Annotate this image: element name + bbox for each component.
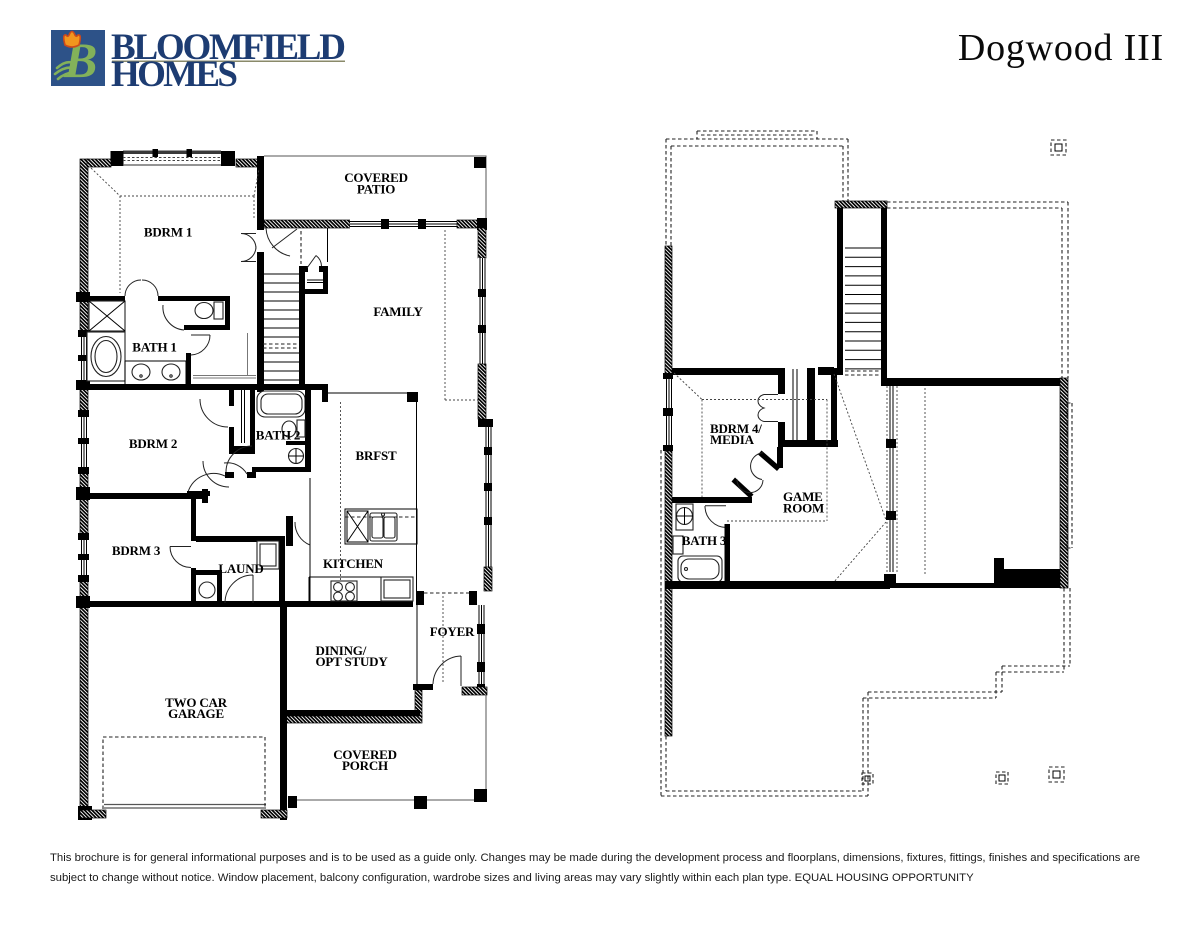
- svg-text:FAMILY: FAMILY: [373, 304, 423, 319]
- svg-text:BDRM 3: BDRM 3: [112, 543, 161, 558]
- svg-text:BDRM 1: BDRM 1: [144, 225, 192, 240]
- svg-text:GARAGE: GARAGE: [168, 706, 224, 721]
- svg-text:Dogwood III: Dogwood III: [958, 27, 1164, 69]
- svg-text:BDRM 2: BDRM 2: [129, 436, 177, 451]
- svg-text:subject to change without noti: subject to change without notice. Window…: [50, 872, 974, 884]
- svg-text:BATH 3: BATH 3: [682, 533, 727, 548]
- svg-text:OPT STUDY: OPT STUDY: [316, 654, 389, 669]
- svg-text:BATH 2: BATH 2: [256, 428, 300, 443]
- svg-text:PATIO: PATIO: [357, 182, 395, 197]
- svg-text:PORCH: PORCH: [342, 758, 388, 773]
- svg-text:KITCHEN: KITCHEN: [323, 556, 384, 571]
- svg-text:BRFST: BRFST: [356, 448, 397, 463]
- svg-text:ROOM: ROOM: [783, 501, 824, 516]
- svg-text:LAUND: LAUND: [218, 561, 263, 576]
- svg-text:MEDIA: MEDIA: [710, 432, 755, 447]
- svg-text:BATH 1: BATH 1: [132, 340, 176, 355]
- svg-text:This brochure is for general i: This brochure is for general information…: [50, 852, 1140, 864]
- svg-text:HOMES: HOMES: [111, 54, 238, 95]
- svg-text:FOYER: FOYER: [430, 624, 475, 639]
